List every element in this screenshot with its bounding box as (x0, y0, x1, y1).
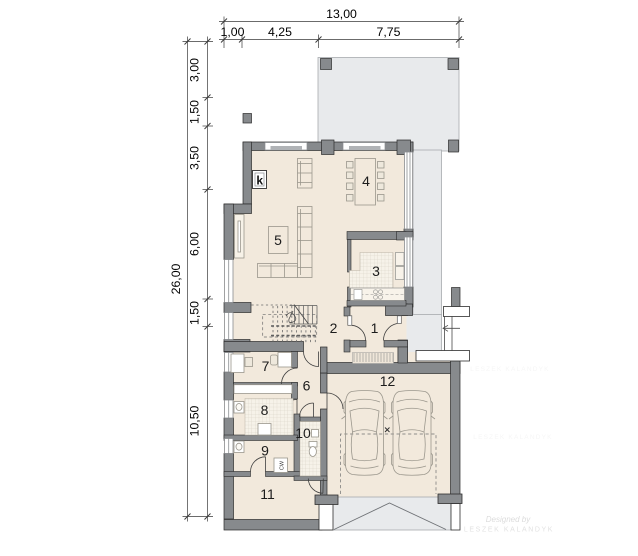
svg-text:7,75: 7,75 (377, 25, 401, 39)
svg-text:LESZEK KALANDYK: LESZEK KALANDYK (473, 434, 552, 441)
svg-text:4: 4 (362, 173, 370, 189)
svg-text:CW: CW (280, 460, 286, 470)
svg-text:6,00: 6,00 (188, 232, 202, 256)
svg-text:12: 12 (380, 373, 396, 389)
svg-text:LESZEK KALANDYK: LESZEK KALANDYK (470, 366, 549, 373)
svg-text:4,25: 4,25 (268, 25, 292, 39)
svg-text:3: 3 (372, 263, 380, 279)
svg-text:10,50: 10,50 (188, 405, 202, 436)
svg-text:3,00: 3,00 (188, 58, 202, 82)
svg-text:Designed by: Designed by (486, 515, 531, 524)
svg-text:5: 5 (274, 232, 282, 248)
svg-text:LESZEK KALANDYK: LESZEK KALANDYK (464, 527, 554, 534)
svg-text:6: 6 (303, 378, 311, 394)
svg-text:13,00: 13,00 (326, 7, 357, 21)
svg-text:1: 1 (371, 320, 379, 336)
svg-text:1,00: 1,00 (221, 25, 245, 39)
svg-text:11: 11 (260, 486, 275, 502)
svg-text:26,00: 26,00 (169, 263, 183, 294)
svg-text:8: 8 (261, 402, 269, 418)
svg-text:7: 7 (262, 358, 270, 374)
svg-text:3,50: 3,50 (188, 146, 202, 170)
svg-text:1,50: 1,50 (188, 100, 202, 124)
svg-text:10: 10 (295, 425, 311, 441)
svg-text:1,50: 1,50 (188, 301, 202, 325)
svg-text:k: k (256, 174, 263, 188)
svg-text:2: 2 (330, 320, 338, 336)
svg-text:9: 9 (261, 443, 269, 459)
